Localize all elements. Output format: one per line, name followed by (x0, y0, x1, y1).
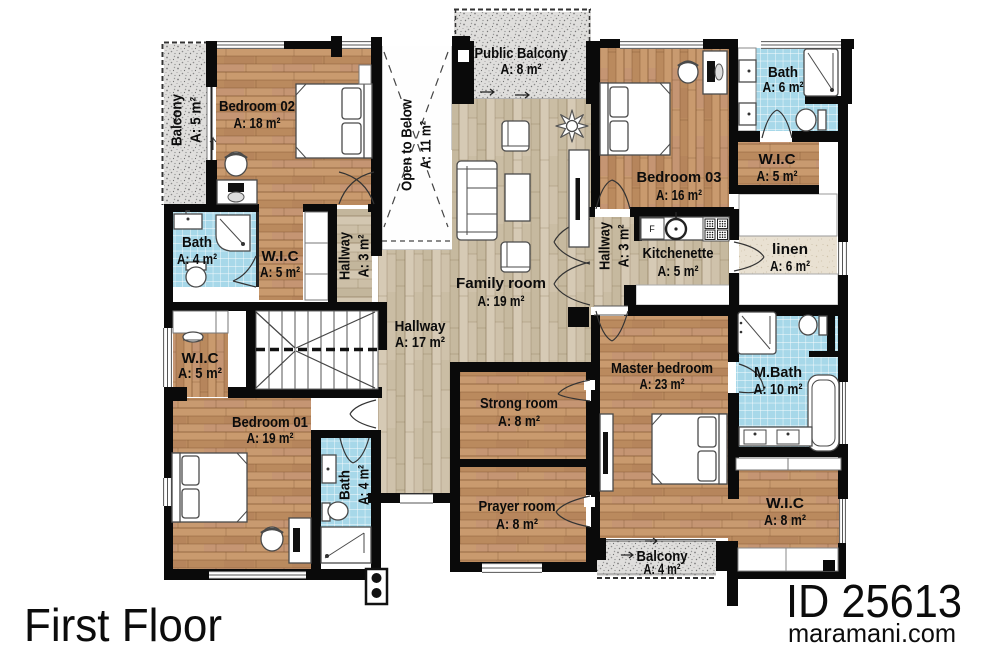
svg-text:Kitchenette: Kitchenette (643, 245, 714, 262)
svg-text:A: 6 m²: A: 6 m² (763, 79, 804, 96)
svg-text:F: F (649, 224, 655, 234)
svg-text:A: 10 m²: A: 10 m² (754, 381, 803, 398)
svg-text:A: 4 m²: A: 4 m² (356, 465, 373, 505)
svg-text:A: 17 m²: A: 17 m² (395, 334, 445, 351)
svg-text:A: 5 m²: A: 5 m² (658, 263, 699, 280)
svg-text:Balcony: Balcony (169, 93, 186, 146)
svg-text:maramani.com: maramani.com (788, 618, 956, 648)
svg-text:A: 19 m²: A: 19 m² (478, 293, 525, 310)
svg-text:Open to Below: Open to Below (399, 99, 416, 191)
svg-text:A: 6 m²: A: 6 m² (770, 258, 810, 275)
svg-text:A: 5 m²: A: 5 m² (260, 264, 300, 281)
svg-text:Hallway: Hallway (395, 318, 447, 335)
svg-text:M.Bath: M.Bath (754, 364, 802, 381)
svg-text:A: 11 m²: A: 11 m² (418, 121, 435, 169)
svg-text:A: 8 m²: A: 8 m² (498, 413, 540, 430)
svg-text:Bedroom 03: Bedroom 03 (637, 169, 722, 186)
svg-text:Family room: Family room (456, 275, 546, 292)
svg-text:Bath: Bath (182, 234, 212, 251)
svg-text:Hallway: Hallway (337, 231, 354, 280)
svg-text:First Floor: First Floor (24, 599, 222, 651)
svg-text:Strong room: Strong room (480, 395, 558, 412)
svg-text:A: 8 m²: A: 8 m² (764, 512, 806, 529)
svg-text:Bath: Bath (337, 470, 354, 500)
svg-text:A: 3 m²: A: 3 m² (356, 235, 373, 278)
svg-text:A: 4 m²: A: 4 m² (644, 561, 681, 578)
svg-text:A: 5 m²: A: 5 m² (178, 365, 222, 382)
svg-text:A: 19 m²: A: 19 m² (247, 430, 294, 447)
svg-text:W.I.C: W.I.C (759, 151, 796, 168)
svg-text:A: 23 m²: A: 23 m² (640, 376, 685, 393)
svg-text:A: 5 m²: A: 5 m² (188, 97, 205, 143)
svg-text:A: 8 m²: A: 8 m² (501, 61, 542, 78)
svg-text:Prayer room: Prayer room (479, 498, 556, 515)
svg-text:Hallway: Hallway (597, 221, 614, 270)
svg-text:A: 3 m²: A: 3 m² (616, 225, 633, 268)
svg-text:Public Balcony: Public Balcony (475, 45, 569, 62)
svg-text:W.I.C: W.I.C (262, 248, 299, 265)
svg-text:A: 5 m²: A: 5 m² (757, 168, 798, 185)
svg-text:A: 4 m²: A: 4 m² (177, 251, 217, 268)
svg-text:Master bedroom: Master bedroom (611, 360, 713, 377)
svg-text:linen: linen (772, 241, 808, 258)
svg-text:Bedroom 02: Bedroom 02 (219, 98, 295, 115)
svg-text:A: 18 m²: A: 18 m² (234, 115, 281, 132)
svg-text:A: 16 m²: A: 16 m² (656, 187, 702, 204)
svg-text:W.I.C: W.I.C (766, 495, 804, 512)
svg-text:Bedroom 01: Bedroom 01 (232, 414, 308, 431)
svg-text:A: 8 m²: A: 8 m² (496, 516, 538, 533)
